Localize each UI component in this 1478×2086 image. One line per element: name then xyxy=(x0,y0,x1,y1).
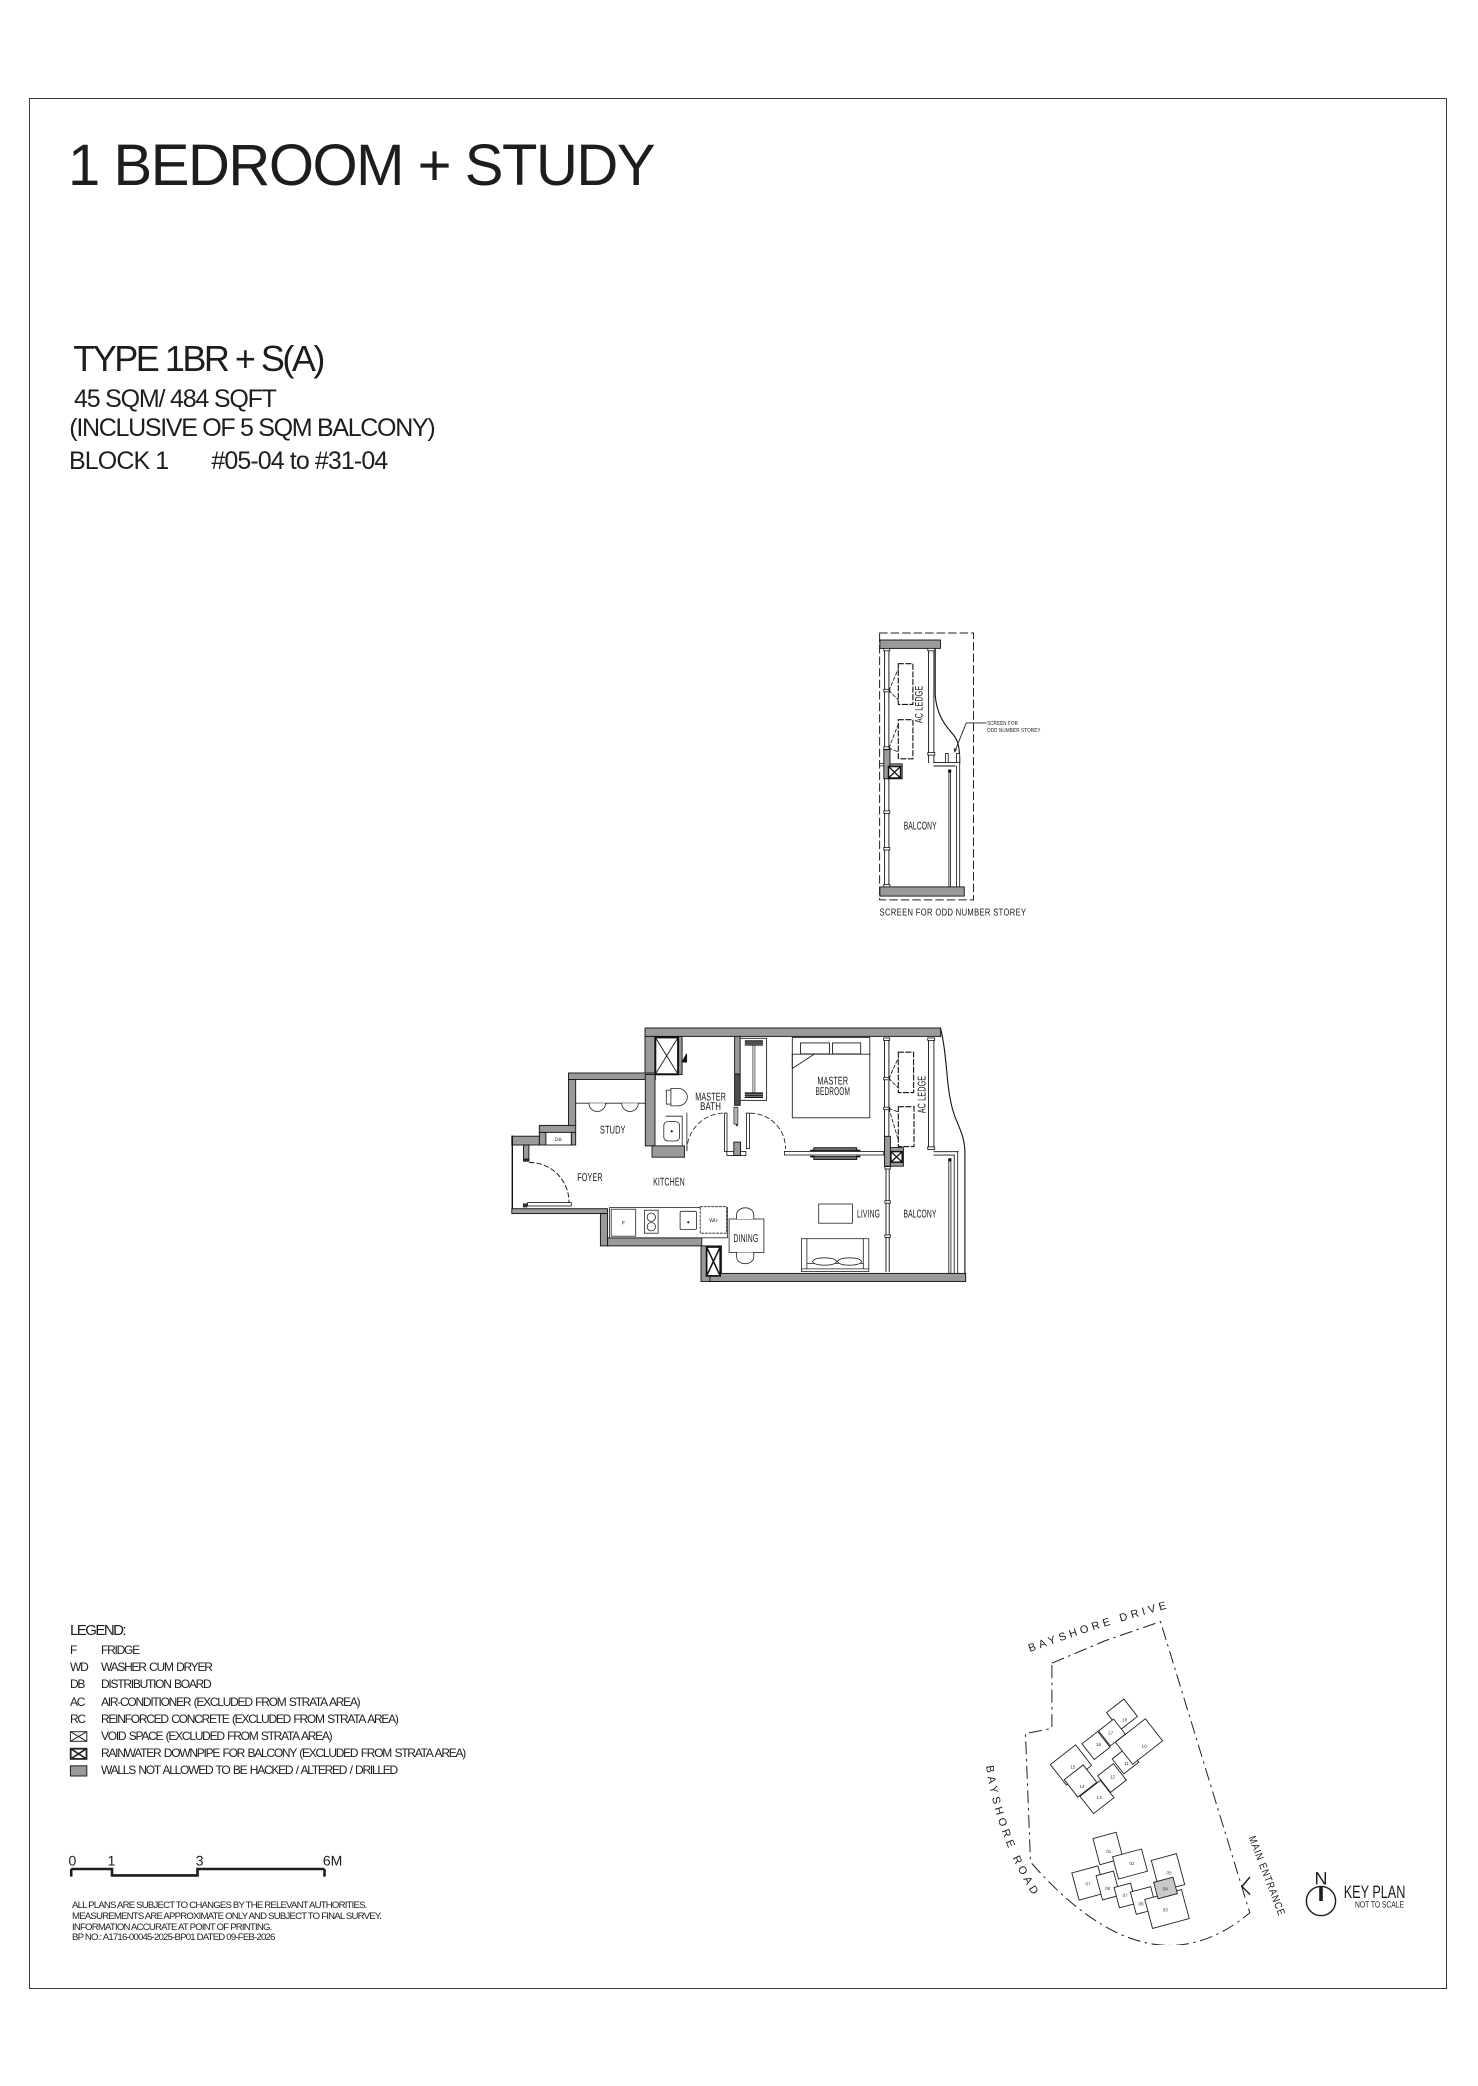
svg-text:SCREEN FOR: SCREEN FOR xyxy=(987,720,1018,727)
svg-text:SCREEN FOR ODD NUMBER STOREY: SCREEN FOR ODD NUMBER STOREY xyxy=(880,907,1027,918)
svg-text:DINING: DINING xyxy=(734,1233,759,1245)
svg-text:03: 03 xyxy=(1163,1908,1169,1913)
svg-text:06: 06 xyxy=(1138,1902,1144,1907)
svg-text:BAYSHORE ROAD: BAYSHORE ROAD xyxy=(983,1765,1042,1900)
svg-text:FOYER: FOYER xyxy=(577,1172,603,1184)
svg-text:BATH: BATH xyxy=(700,1101,721,1113)
svg-text:0: 0 xyxy=(69,1853,77,1869)
svg-text:AC LEDGE: AC LEDGE xyxy=(916,1076,928,1114)
svg-text:3: 3 xyxy=(196,1853,204,1869)
svg-text:BALCONY: BALCONY xyxy=(904,820,937,832)
svg-text:BEDROOM: BEDROOM xyxy=(816,1086,851,1098)
svg-text:10: 10 xyxy=(1142,1744,1148,1749)
svg-text:AC LEDGE: AC LEDGE xyxy=(913,686,925,724)
svg-text:NOT TO SCALE: NOT TO SCALE xyxy=(1355,1899,1404,1909)
svg-text:07: 07 xyxy=(1123,1893,1129,1898)
svg-text:12: 12 xyxy=(1110,1775,1116,1780)
svg-text:07: 07 xyxy=(1085,1882,1091,1887)
svg-text:WD: WD xyxy=(709,1218,718,1224)
svg-text:BALCONY: BALCONY xyxy=(904,1209,937,1221)
svg-text:DB: DB xyxy=(555,1137,563,1143)
svg-text:N: N xyxy=(1315,1869,1328,1889)
svg-text:STUDY: STUDY xyxy=(600,1124,626,1136)
svg-text:02: 02 xyxy=(1129,1861,1135,1866)
svg-text:F: F xyxy=(622,1221,625,1227)
svg-text:11: 11 xyxy=(1124,1761,1129,1766)
svg-text:BAYSHORE DRIVE: BAYSHORE DRIVE xyxy=(1027,1599,1171,1655)
svg-text:17: 17 xyxy=(1108,1731,1114,1736)
svg-text:MAIN ENTRANCE: MAIN ENTRANCE xyxy=(1246,1834,1288,1918)
svg-text:KITCHEN: KITCHEN xyxy=(653,1177,685,1189)
svg-text:ODD NUMBER STOREY: ODD NUMBER STOREY xyxy=(987,727,1041,734)
svg-text:16: 16 xyxy=(1096,1742,1102,1747)
svg-text:01: 01 xyxy=(1106,1849,1112,1854)
svg-text:04: 04 xyxy=(1163,1887,1169,1892)
svg-text:18: 18 xyxy=(1122,1718,1128,1723)
svg-text:08: 08 xyxy=(1105,1886,1111,1891)
svg-text:05: 05 xyxy=(1166,1871,1172,1876)
svg-text:14: 14 xyxy=(1079,1784,1085,1789)
svg-text:6M: 6M xyxy=(323,1853,342,1869)
svg-text:13: 13 xyxy=(1097,1795,1103,1800)
svg-text:1: 1 xyxy=(108,1853,116,1869)
svg-text:LIVING: LIVING xyxy=(857,1209,880,1221)
svg-text:15: 15 xyxy=(1070,1765,1076,1770)
